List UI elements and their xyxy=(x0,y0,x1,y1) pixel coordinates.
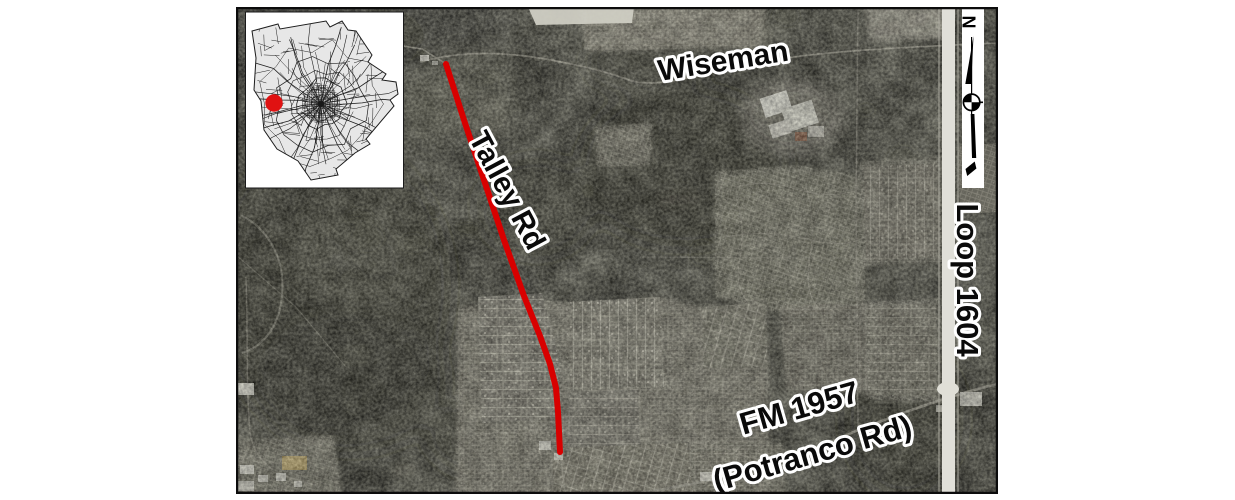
svg-text:N: N xyxy=(959,16,979,29)
svg-text:Loop 1604: Loop 1604 xyxy=(950,203,985,357)
